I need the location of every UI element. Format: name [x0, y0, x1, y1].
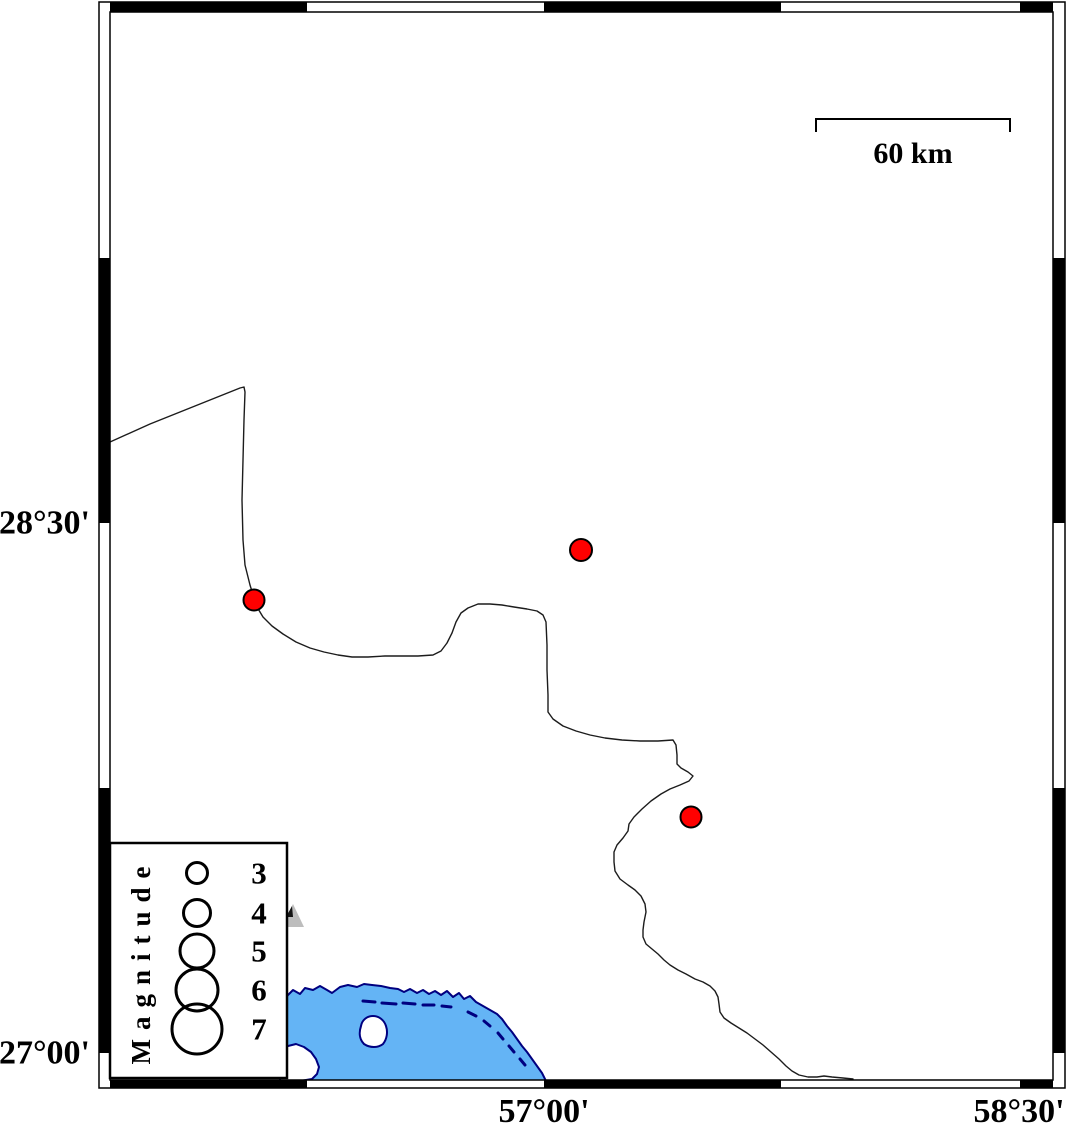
- epicenter-marker: [681, 807, 702, 828]
- epicenter-marker: [244, 590, 265, 611]
- epicenter-marker: [570, 539, 592, 561]
- island: [360, 1016, 387, 1047]
- scale-bar-label: 60 km: [873, 137, 952, 170]
- legend-title: Magnitude: [126, 857, 156, 1064]
- legend-value: 6: [251, 973, 267, 1008]
- lon-label: 57°00': [498, 1093, 589, 1129]
- legend-value: 7: [251, 1012, 267, 1047]
- magnitude-legend: Magnitude 3 4 5 6 7: [110, 843, 287, 1078]
- lon-label: 58°30': [973, 1093, 1064, 1129]
- map-canvas: 28°30' 27°00' 57°00' 58°30' 60 km Magnit…: [0, 0, 1066, 1129]
- legend-value: 4: [251, 896, 267, 931]
- epicenters-layer: [244, 539, 702, 828]
- legend-value: 5: [251, 934, 267, 969]
- lat-label: 28°30': [0, 505, 90, 542]
- scale-bar: 60 km: [816, 119, 1010, 170]
- map-figure: 28°30' 27°00' 57°00' 58°30' 60 km Magnit…: [0, 0, 1066, 1129]
- scale-bar-bracket: [816, 119, 1010, 132]
- legend-value: 3: [251, 856, 267, 891]
- sea-polygon: [280, 984, 546, 1081]
- lat-label: 27°00': [0, 1035, 90, 1072]
